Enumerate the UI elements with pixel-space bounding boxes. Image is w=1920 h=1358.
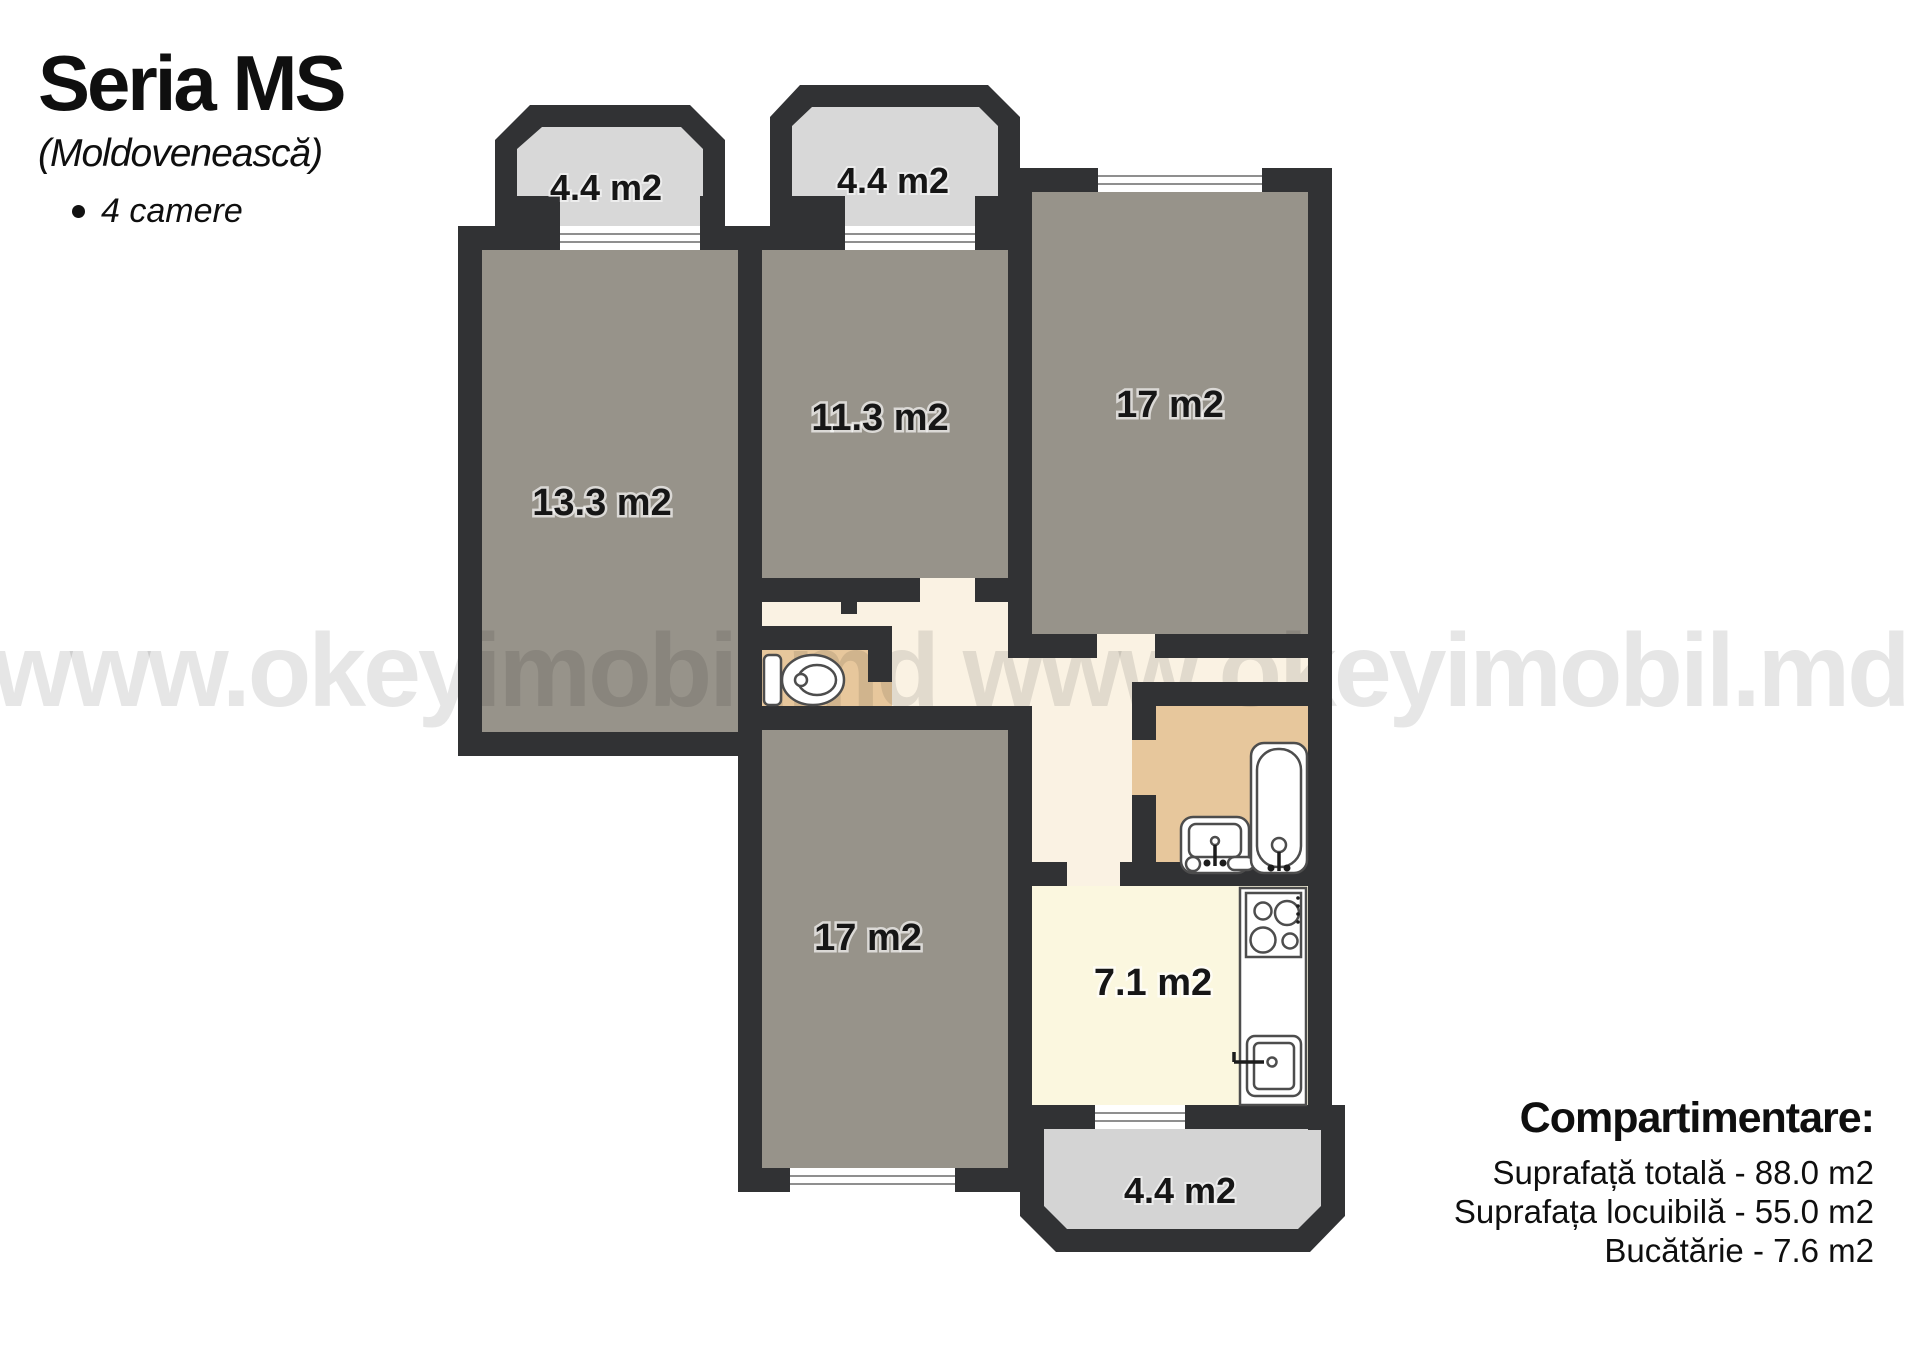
page-subtitle: (Moldovenească) [38,132,343,176]
room-17-bottom-label: 17 m2 [814,917,922,959]
bullet-dot-icon [72,205,85,218]
balcony-top-left-label: 4.4 m2 [550,167,662,208]
page-title: Seria MS [38,44,343,124]
toilet-icon [764,655,844,705]
summary-block: Compartimentare: Suprafață totală - 88.0… [1454,1094,1874,1270]
window-kitchen [1095,1105,1185,1129]
room-17-top-label: 17 m2 [1116,384,1224,426]
title-block: Seria MS (Moldovenească) 4 camere [38,44,343,231]
bullet-label: 4 camere [101,192,243,231]
bath-sink-icon [1181,817,1254,873]
summary-total-area: Suprafață totală - 88.0 m2 [1454,1153,1874,1192]
stove-icon [1246,893,1301,957]
room-11-3-label: 11.3 m2 [811,397,948,439]
balcony-top-middle-label: 4.4 m2 [837,160,949,201]
summary-living-area: Suprafața locuibilă - 55.0 m2 [1454,1192,1874,1231]
window-room-17-bottom [790,1168,955,1192]
summary-title: Compartimentare: [1454,1094,1874,1143]
summary-kitchen-area: Bucătărie - 7.6 m2 [1454,1231,1874,1270]
kitchen-label: 7.1 m2 [1094,962,1212,1004]
balcony-bottom-label: 4.4 m2 [1124,1170,1236,1211]
room-13-3-label: 13.3 m2 [532,482,671,524]
window-room-13-3 [560,226,700,250]
floor-plan-page: www.okeyimobil.md www.okeyimobil.md [0,0,1920,1358]
bullet-row: 4 camere [72,192,343,231]
window-room-17-top [1098,168,1262,192]
window-room-11-3 [845,226,975,250]
bathtub-icon [1251,743,1307,873]
